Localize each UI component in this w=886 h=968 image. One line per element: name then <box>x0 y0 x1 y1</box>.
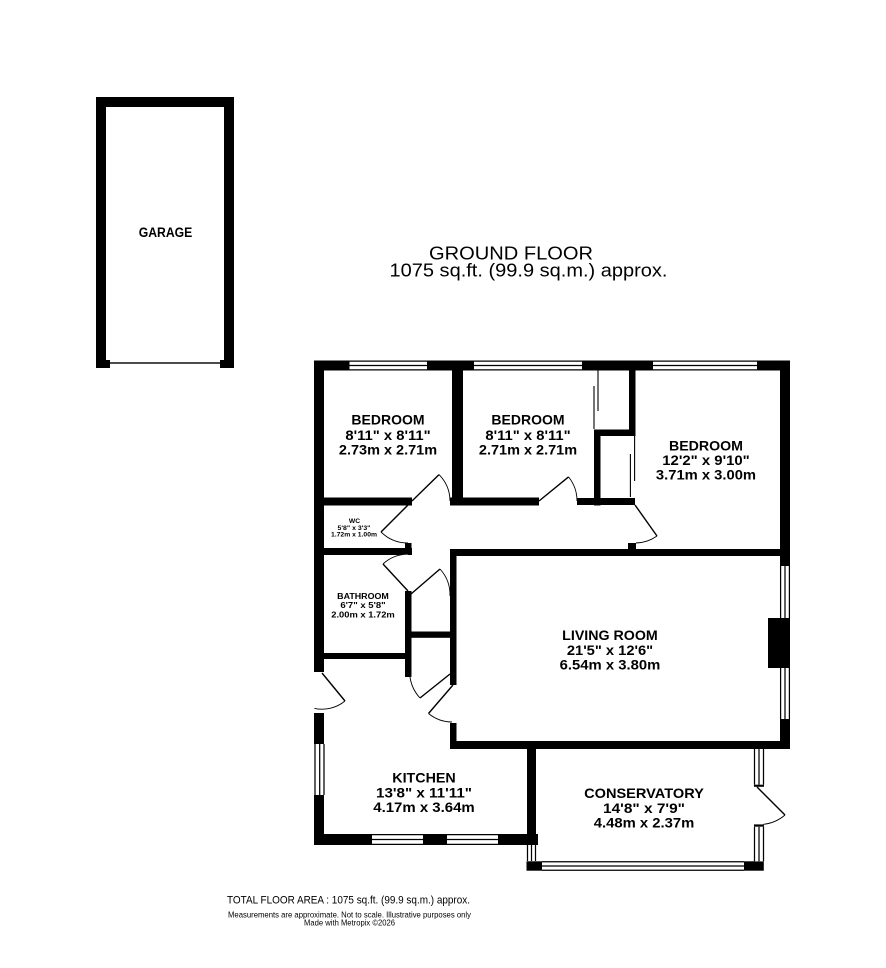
svg-text:BEDROOM: BEDROOM <box>351 412 424 428</box>
svg-text:2.00m x 1.72m: 2.00m x 1.72m <box>331 609 395 619</box>
svg-text:4.17m x 3.64m: 4.17m x 3.64m <box>373 799 475 815</box>
svg-text:TOTAL FLOOR AREA : 1075 sq.ft.: TOTAL FLOOR AREA : 1075 sq.ft. (99.9 sq.… <box>227 895 470 907</box>
svg-text:KITCHEN: KITCHEN <box>392 770 456 786</box>
svg-text:1075 sq.ft. (99.9 sq.m.) appro: 1075 sq.ft. (99.9 sq.m.) approx. <box>390 261 668 281</box>
svg-text:2.73m x 2.71m: 2.73m x 2.71m <box>339 442 437 458</box>
svg-text:CONSERVATORY: CONSERVATORY <box>584 785 704 801</box>
svg-text:BEDROOM: BEDROOM <box>491 412 564 428</box>
svg-text:1.72m x 1.00m: 1.72m x 1.00m <box>331 532 377 539</box>
svg-text:GARAGE: GARAGE <box>139 225 193 241</box>
svg-text:LIVING ROOM: LIVING ROOM <box>562 627 658 643</box>
svg-text:3.71m x 3.00m: 3.71m x 3.00m <box>656 467 756 483</box>
svg-text:4.48m x 2.37m: 4.48m x 2.37m <box>594 815 695 831</box>
svg-text:Made with Metropix ©2026: Made with Metropix ©2026 <box>304 918 395 928</box>
svg-text:2.71m x 2.71m: 2.71m x 2.71m <box>479 442 577 458</box>
svg-text:6.54m x 3.80m: 6.54m x 3.80m <box>560 657 661 673</box>
